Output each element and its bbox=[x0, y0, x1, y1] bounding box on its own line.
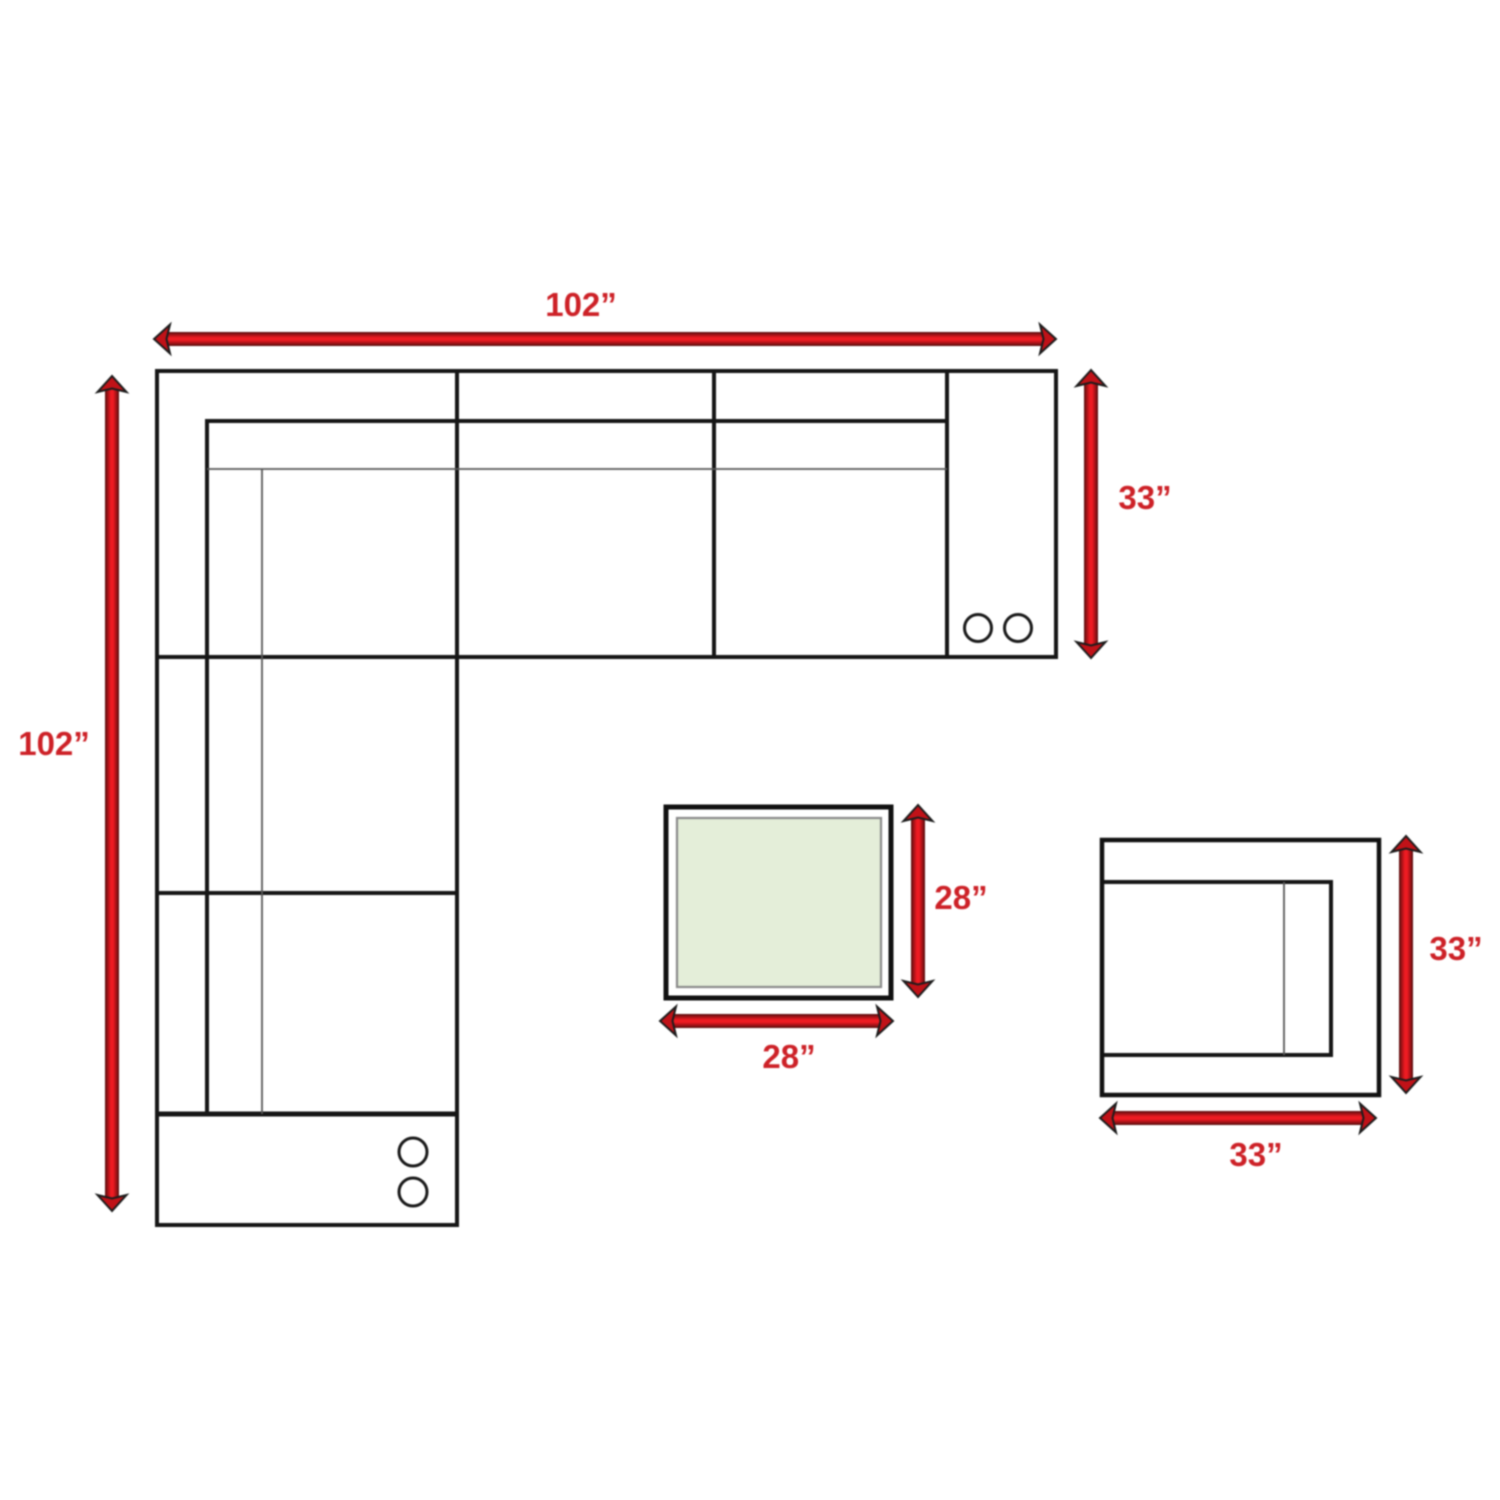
svg-text:33”: 33” bbox=[1429, 930, 1482, 967]
svg-text:33”: 33” bbox=[1229, 1136, 1282, 1173]
svg-text:28”: 28” bbox=[934, 879, 987, 916]
svg-text:28”: 28” bbox=[762, 1038, 815, 1075]
svg-text:102”: 102” bbox=[545, 286, 617, 323]
svg-text:102”: 102” bbox=[18, 725, 90, 762]
svg-text:33”: 33” bbox=[1118, 479, 1171, 516]
